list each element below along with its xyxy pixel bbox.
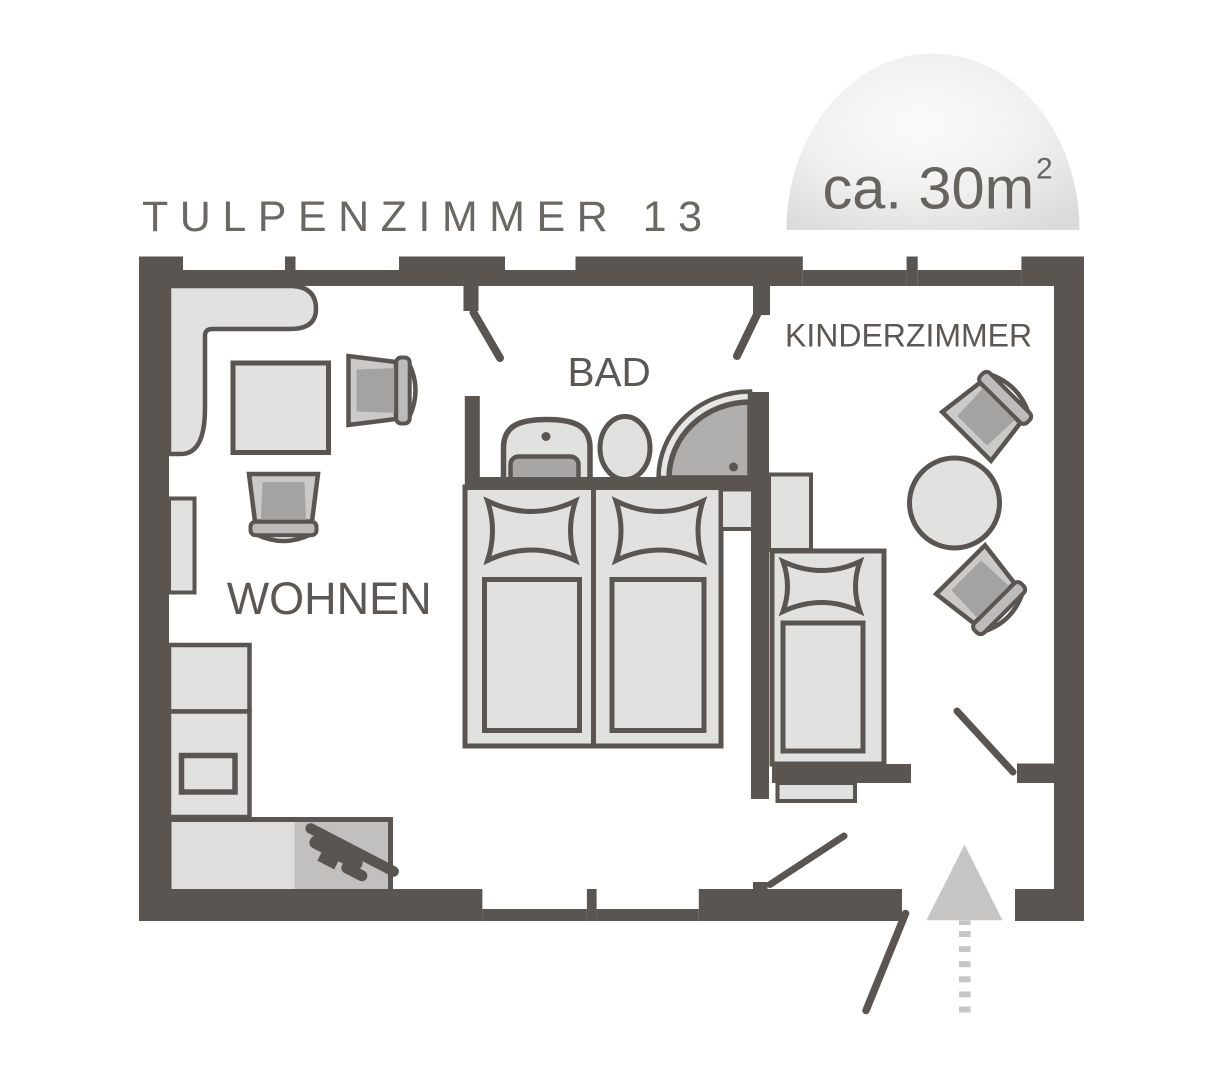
svg-text:KINDERZIMMER: KINDERZIMMER: [785, 318, 1032, 354]
svg-text:2: 2: [1036, 153, 1053, 186]
svg-text:ca. 30m: ca. 30m: [823, 155, 1035, 222]
svg-text:TULPENZIMMER 13: TULPENZIMMER 13: [142, 193, 714, 241]
svg-text:BAD: BAD: [568, 349, 651, 395]
svg-text:WOHNEN: WOHNEN: [227, 573, 432, 624]
